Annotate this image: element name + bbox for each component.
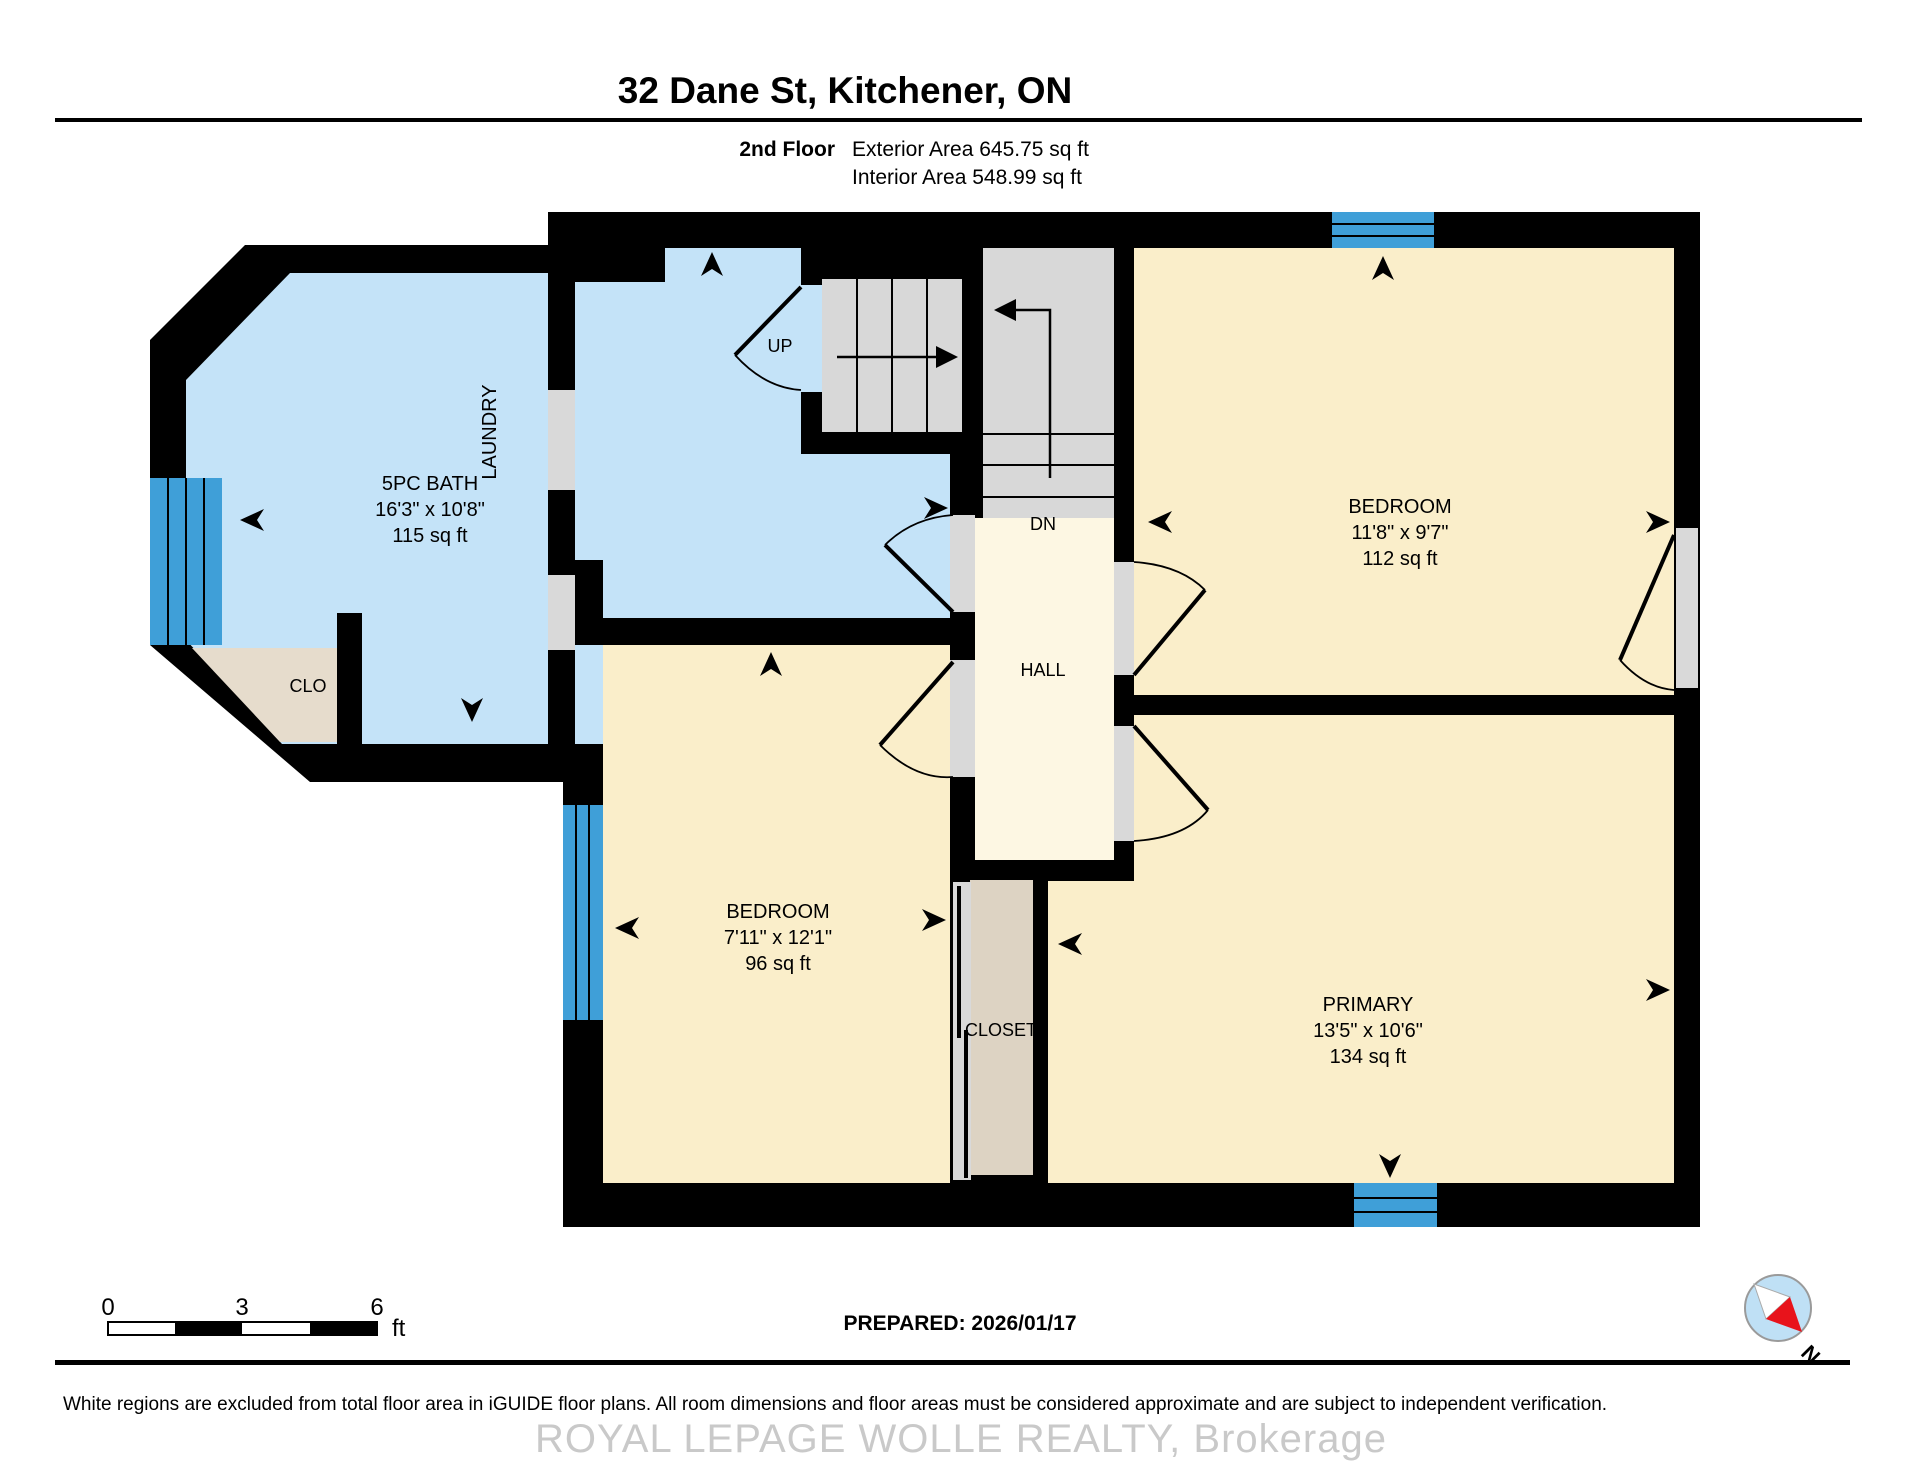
opening-hall-primary <box>1114 726 1134 841</box>
bedroom-left-dims: 7'11" x 12'1" <box>724 927 832 949</box>
clo-wall-stub <box>337 613 362 744</box>
bedroom-left-name: BEDROOM <box>726 901 829 923</box>
stairs-down-flight <box>983 248 1114 518</box>
window-bay-bath <box>150 478 222 645</box>
scale-3: 3 <box>235 1294 248 1321</box>
interior-area: Interior Area 548.99 sq ft <box>852 166 1082 189</box>
footer-divider <box>55 1360 1850 1365</box>
window-primary-bottom <box>1354 1183 1437 1227</box>
bedroom-top-floor <box>1134 248 1674 695</box>
opening-bath-laundry-1 <box>548 390 575 490</box>
hall-floor <box>975 518 1114 860</box>
laundry-step-wall <box>575 248 665 282</box>
prepared-date: PREPARED: 2026/01/17 <box>843 1312 1076 1335</box>
brokerage-watermark: ROYAL LEPAGE WOLLE REALTY, Brokerage <box>535 1417 1387 1461</box>
primary-area: 134 sq ft <box>1330 1046 1407 1068</box>
scale-bar-segment <box>175 1322 242 1335</box>
hall-label: HALL <box>1020 660 1065 680</box>
scale-0: 0 <box>101 1294 114 1321</box>
page-title: 32 Dane St, Kitchener, ON <box>618 70 1072 111</box>
stairs-down-label: DN <box>1030 514 1056 534</box>
scale-6: 6 <box>370 1294 383 1321</box>
compass: N <box>1745 1275 1825 1369</box>
opening-bath-laundry-2 <box>548 575 575 650</box>
opening-bedroom-right-wall <box>1676 528 1698 688</box>
window-bedroom-top <box>1332 212 1434 248</box>
exterior-area: Exterior Area 645.75 sq ft <box>852 138 1089 161</box>
bedroom-top-name: BEDROOM <box>1348 496 1451 518</box>
primary-dims: 13'5" x 10'6" <box>1313 1020 1423 1042</box>
opening-laundry-hall <box>950 515 975 612</box>
bedroom-top-area: 112 sq ft <box>1362 548 1438 570</box>
stairs-up-label: UP <box>767 336 792 356</box>
closet-label: CLOSET <box>965 1020 1037 1040</box>
primary-floor <box>1048 715 1674 1183</box>
scale-bar: 0 3 6 ft <box>101 1294 405 1342</box>
bath-dims: 16'3" x 10'8" <box>375 499 485 521</box>
scale-unit: ft <box>392 1315 406 1342</box>
opening-hall-bedroom-top <box>1114 562 1134 675</box>
scale-bar-segment <box>310 1322 377 1335</box>
footer-disclaimer: White regions are excluded from total fl… <box>63 1394 1607 1415</box>
opening-stair-top <box>801 285 822 392</box>
header-divider <box>55 118 1862 122</box>
laundry-label: LAUNDRY <box>479 384 501 479</box>
primary-name: PRIMARY <box>1323 994 1414 1016</box>
floor-plan-page: 32 Dane St, Kitchener, ON 2nd Floor Exte… <box>0 0 1920 1484</box>
opening-hall-bedroom-left <box>950 660 975 777</box>
clo-label: CLO <box>289 676 326 696</box>
bath-area: 115 sq ft <box>392 525 468 547</box>
bath-name: 5PC BATH <box>382 473 478 495</box>
window-bedroom-left <box>563 805 603 1020</box>
bedroom-top-dims: 11'8" x 9'7" <box>1351 522 1448 544</box>
bedroom-left-area: 96 sq ft <box>745 953 811 975</box>
floor-label: 2nd Floor <box>739 138 835 161</box>
